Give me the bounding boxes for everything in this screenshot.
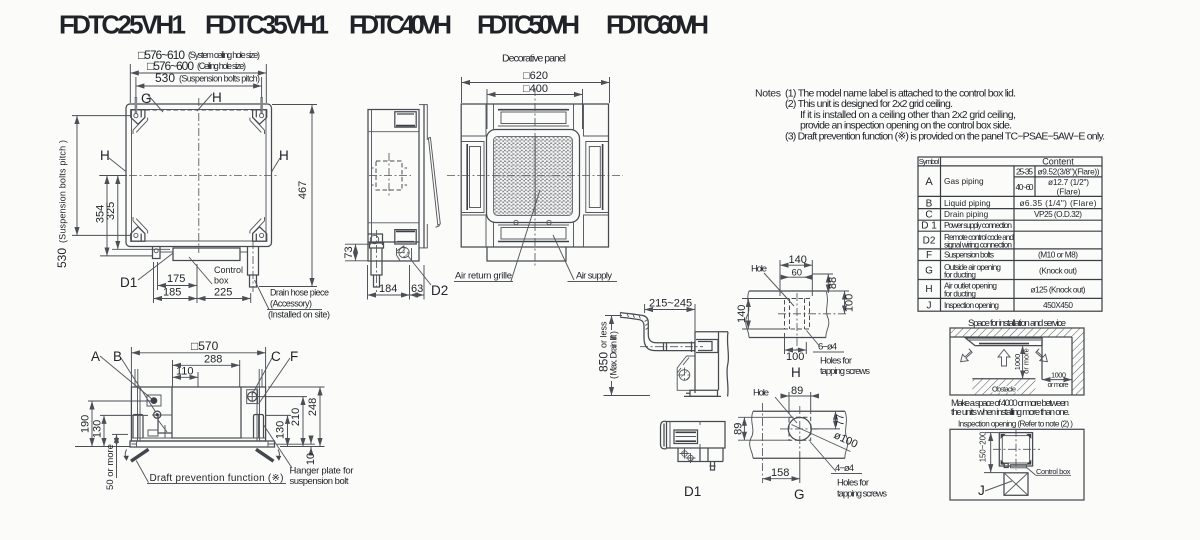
svg-text:or more: or more [1048,380,1069,389]
svg-text:10: 10 [305,453,317,465]
svg-text:ø100: ø100 [832,429,860,450]
svg-text:50 or more: 50 or more [105,444,116,490]
svg-text:FDTC40VH: FDTC40VH [349,10,452,40]
svg-text:or less: or less [599,321,609,348]
svg-text:A: A [91,349,100,364]
svg-text:□620: □620 [523,70,548,82]
svg-text:H: H [925,284,932,295]
svg-text:C: C [925,210,932,221]
svg-text:VP25 (O.D.32): VP25 (O.D.32) [1034,209,1082,219]
svg-text:Drain hose piece: Drain hose piece [270,288,329,298]
svg-text:H: H [212,90,222,105]
svg-text:C: C [271,349,281,364]
svg-text:450X450: 450X450 [1043,300,1073,310]
svg-text:Content: Content [1042,157,1074,167]
svg-text:the units when installing more: the units when installing more than one. [951,407,1070,418]
svg-text:530: 530 [55,248,69,268]
svg-text:H: H [100,148,110,163]
svg-text:FDTC50VH: FDTC50VH [477,10,580,40]
svg-text:130: 130 [92,420,104,438]
svg-text:H: H [279,148,289,163]
svg-text:tapping screws: tapping screws [820,366,870,377]
svg-text:F: F [290,349,298,364]
svg-text:467: 467 [297,181,309,199]
svg-text:FDTC35VH1: FDTC35VH1 [205,10,329,40]
svg-text:150~200: 150~200 [978,431,987,462]
svg-text:Inspection opening (Refer to n: Inspection opening (Refer to note (2) ) [958,420,1073,429]
svg-text:73: 73 [343,246,355,258]
svg-text:63: 63 [411,283,423,295]
svg-text:Liquid piping: Liquid piping [944,198,991,208]
svg-text:(Accessory): (Accessory) [270,299,312,309]
svg-text:100: 100 [844,294,856,312]
svg-text:185: 185 [163,287,181,299]
svg-text:Control: Control [214,265,243,275]
svg-text:D2: D2 [923,236,936,247]
svg-text:140: 140 [736,305,748,323]
svg-text:Space for installation and ser: Space for installation and service [968,318,1066,329]
svg-text:130: 130 [275,421,287,439]
svg-text:(Knock out): (Knock out) [1039,266,1077,276]
svg-text:(Ceiling hole size): (Ceiling hole size) [197,61,246,71]
svg-text:88: 88 [827,277,839,289]
svg-text:signal wiring connection: signal wiring connection [944,240,1012,250]
svg-text:325: 325 [105,202,117,220]
svg-text:40~60: 40~60 [1016,182,1034,192]
svg-text:Control box: Control box [1036,467,1071,476]
svg-text:288: 288 [204,354,222,366]
svg-text:□570: □570 [191,339,219,353]
svg-text:D1: D1 [120,275,137,290]
svg-text:Hole: Hole [751,264,767,275]
svg-text:190: 190 [80,415,92,433]
svg-text:Drain piping: Drain piping [944,209,989,219]
svg-text:(Suspension bolts pitch ): (Suspension bolts pitch ) [58,140,68,243]
svg-text:or more: or more [1022,348,1031,373]
svg-text:100: 100 [786,351,804,363]
svg-text:Obstacle: Obstacle [992,385,1016,394]
svg-text:B: B [926,198,933,209]
svg-text:1000: 1000 [1051,371,1066,380]
svg-text:Draft prevention function (※): Draft prevention function (※) [150,473,284,484]
svg-text:B: B [113,349,122,364]
svg-text:530: 530 [155,71,175,85]
svg-text:Holes for: Holes for [820,356,852,367]
svg-text:225: 225 [214,287,232,299]
svg-text:Gas piping: Gas piping [944,176,984,186]
svg-text:□400: □400 [523,83,548,95]
svg-text:ø6.35 (1/4") (Flare): ø6.35 (1/4") (Flare) [1020,198,1097,208]
svg-text:60: 60 [792,268,803,279]
svg-text:158: 158 [771,467,789,479]
svg-text:G: G [794,487,805,502]
svg-text:Air return grille: Air return grille [455,271,512,282]
svg-text:25-35: 25-35 [1016,167,1033,177]
svg-text:Air supply: Air supply [576,271,612,282]
svg-text:248: 248 [307,398,319,416]
svg-text:F: F [926,250,932,261]
svg-text:ø125 (Knock out): ø125 (Knock out) [1031,284,1086,294]
svg-text:FDTC25VH1: FDTC25VH1 [59,10,186,40]
svg-text:110: 110 [176,366,194,378]
svg-text:Hanger plate for: Hanger plate for [290,466,354,477]
svg-text:Power supply connection: Power supply connection [944,220,1012,230]
svg-text:suspension bolt: suspension bolt [290,476,349,487]
svg-text:FDTC60VH: FDTC60VH [606,10,709,40]
svg-text:184: 184 [379,283,397,295]
svg-text:89: 89 [733,423,745,435]
svg-text:D1: D1 [684,484,701,499]
svg-text:Decorative panel: Decorative panel [502,53,566,65]
svg-text:Inspection opening: Inspection opening [944,300,999,310]
svg-text:215~245: 215~245 [649,298,692,310]
svg-text:Hole: Hole [753,388,769,399]
svg-text:tapping screws: tapping screws [837,489,887,500]
svg-text:box: box [214,276,229,286]
svg-text:(Flare): (Flare) [1057,186,1081,196]
svg-text:140: 140 [789,254,807,266]
svg-text:Symbol: Symbol [919,157,940,166]
svg-text:(Installed on site): (Installed on site) [268,310,330,320]
svg-text:J: J [978,483,985,498]
svg-text:(3) Draft prevention function: (3) Draft prevention function (※) is pro… [785,130,1105,142]
svg-text:D2: D2 [431,283,448,298]
svg-text:4−ø4: 4−ø4 [835,463,854,474]
svg-text:Notes: Notes [755,88,781,100]
svg-text:ø9.52(3/8")(Flare)): ø9.52(3/8")(Flare)) [1038,167,1100,177]
svg-text:89: 89 [791,385,803,397]
svg-text:(M10 or M8): (M10 or M8) [1038,249,1078,259]
svg-text:6−ø4: 6−ø4 [818,342,837,353]
svg-text:( Max. Drain lift ): ( Max. Drain lift ) [609,331,619,379]
svg-text:175: 175 [167,273,185,285]
svg-text:(System ceiling hole size): (System ceiling hole size) [188,50,260,60]
svg-text:A: A [925,176,933,188]
svg-text:(Suspension bolts pitch): (Suspension bolts pitch) [179,74,260,84]
svg-text:for ducting: for ducting [944,288,976,298]
svg-text:Suspension bolts: Suspension bolts [944,249,994,259]
svg-text:Holes for: Holes for [837,478,869,489]
svg-text:210: 210 [290,408,302,426]
svg-text:D 1: D 1 [921,221,937,232]
svg-text:G: G [925,265,933,276]
svg-text:for ducting: for ducting [944,270,976,280]
svg-text:77: 77 [835,414,847,426]
svg-text:J: J [927,301,932,312]
svg-text:G: G [141,91,152,106]
svg-text:H: H [791,365,801,380]
